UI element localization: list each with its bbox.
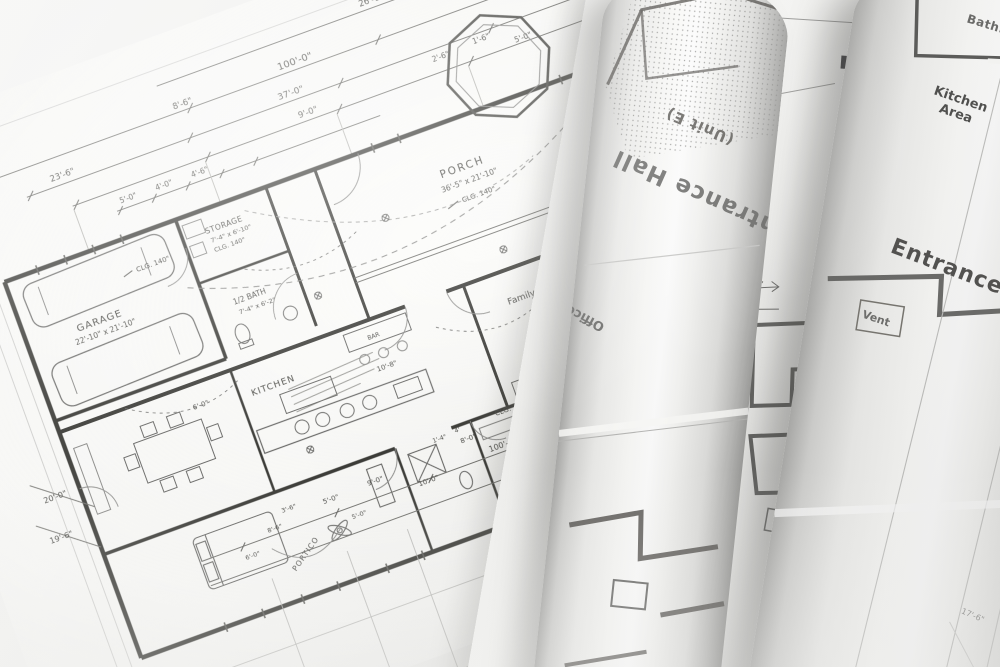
chevron-lines [995,461,1000,610]
blueprint-photo: 100'-0" 37'-0" 9'-0" 23'-6" 8'-6" 5'-0" … [0,0,1000,667]
paper-seam [774,454,1000,560]
